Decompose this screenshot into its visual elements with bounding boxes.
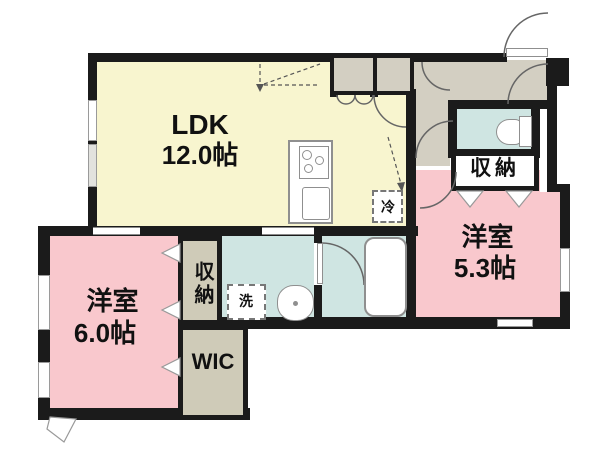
stove-burner-1 bbox=[302, 150, 312, 160]
closet-fold-mark-1 bbox=[162, 244, 180, 262]
entry-inner-door-arc bbox=[508, 64, 548, 104]
bedroom53-size-label: 5.3帖 bbox=[420, 255, 550, 282]
outswing-door-leaf bbox=[47, 417, 76, 442]
stove-burner-2 bbox=[315, 156, 324, 165]
ldk-name-label: LDK bbox=[130, 110, 270, 139]
bedroom6-size-label: 6.0帖 bbox=[40, 320, 170, 347]
corridor-door-arc bbox=[422, 62, 450, 90]
ldk-door-arc bbox=[374, 95, 406, 127]
entry-door-leaf bbox=[506, 48, 548, 57]
bedroom53-door-arc bbox=[420, 172, 456, 208]
bathtub bbox=[364, 237, 407, 317]
toilet-tank bbox=[519, 116, 532, 147]
toilet-door-arc bbox=[416, 121, 453, 158]
storage-right-label: 収納 bbox=[453, 158, 537, 180]
wic-label: WIC bbox=[181, 350, 245, 373]
ldk-size-label: 12.0帖 bbox=[125, 142, 275, 169]
dash-arrowhead-left bbox=[256, 84, 264, 92]
storage-fold-mark-1 bbox=[457, 191, 483, 207]
closet-bifold-arc-2 bbox=[355, 95, 373, 104]
washbasin-drain bbox=[293, 301, 298, 306]
bath-door-arc bbox=[322, 243, 364, 285]
storage-fold-mark-2 bbox=[506, 191, 532, 207]
floorplan: LDK 12.0帖 洋室 6.0帖 洋室 5.3帖 収納 収納 WIC 洗 冷 bbox=[0, 0, 600, 449]
kitchen-sink bbox=[302, 187, 330, 220]
bath-door-leaf bbox=[317, 243, 323, 284]
fridge-label: 冷 bbox=[379, 200, 397, 215]
bedroom53-name-label: 洋室 bbox=[425, 224, 550, 251]
bedroom6-name-label: 洋室 bbox=[50, 288, 175, 315]
kitchen-dash-diagonal bbox=[388, 137, 401, 184]
stove-burner-3 bbox=[304, 164, 313, 173]
closet-fold-mark-3 bbox=[162, 358, 180, 376]
washer-label: 洗 bbox=[234, 294, 258, 309]
ceiling-dash-diagonal bbox=[264, 64, 320, 84]
storage-left-label: 収納 bbox=[188, 246, 212, 322]
closet-bifold-arc-1 bbox=[337, 95, 355, 104]
